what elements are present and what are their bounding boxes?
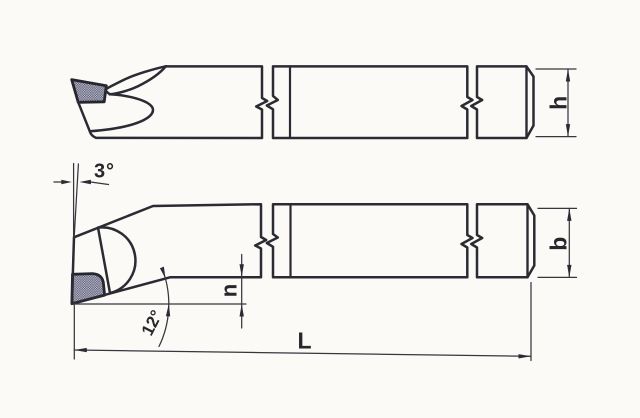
svg-text:b: b [546, 237, 572, 251]
svg-text:h: h [545, 96, 571, 110]
svg-text:12°: 12° [138, 307, 167, 339]
svg-text:n: n [217, 284, 242, 297]
svg-text:L: L [297, 327, 311, 353]
svg-text:3°: 3° [94, 161, 115, 183]
